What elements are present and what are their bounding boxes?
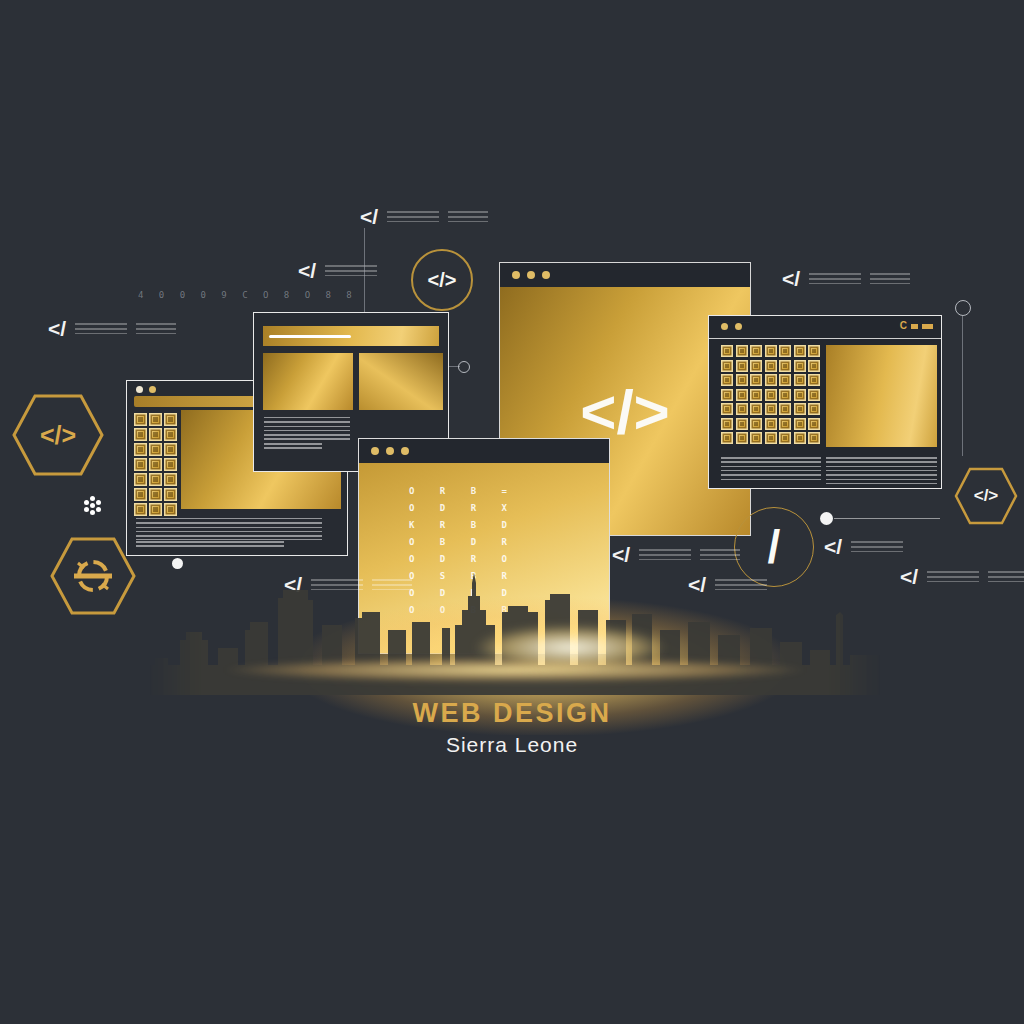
code-tag-icon: </> xyxy=(428,269,457,292)
window-dot xyxy=(149,386,156,393)
grid-thumbnail xyxy=(736,418,748,430)
grid-thumbnail xyxy=(134,503,147,516)
grid-thumbnail xyxy=(779,432,791,444)
grid-thumbnail xyxy=(765,418,777,430)
dots-cluster-icon xyxy=(90,503,95,508)
grid-thumbnail xyxy=(750,389,762,401)
grid-thumbnail xyxy=(736,403,748,415)
grid-thumbnail xyxy=(808,432,820,444)
close-tag-icon: </ xyxy=(298,260,316,281)
grid-thumbnail xyxy=(134,443,147,456)
window-dot xyxy=(721,323,728,330)
grid-thumbnail xyxy=(794,374,806,386)
window-dot xyxy=(136,386,143,393)
close-tag-icon: </ xyxy=(900,566,918,587)
grid-thumbnail xyxy=(779,360,791,372)
grid-thumbnail xyxy=(149,428,162,441)
pseudo-text-lines xyxy=(448,211,488,222)
grid-thumbnail xyxy=(149,488,162,501)
node-circle xyxy=(458,361,470,373)
code-row: K R B D xyxy=(409,517,517,534)
grid-thumbnail xyxy=(134,488,147,501)
grid-thumbnail xyxy=(721,345,733,357)
grid-thumbnail xyxy=(794,345,806,357)
title-bar xyxy=(359,439,609,463)
pseudo-text-lines xyxy=(988,571,1024,582)
grid-thumbnail xyxy=(164,488,177,501)
paragraph-lines xyxy=(721,457,821,481)
code-snippet: </ xyxy=(900,566,1024,587)
code-snippet: </ xyxy=(782,268,910,289)
grid-thumbnail xyxy=(779,389,791,401)
grid-thumbnail xyxy=(164,428,177,441)
pseudo-text-lines xyxy=(870,273,910,284)
grid-thumbnail xyxy=(808,418,820,430)
grid-thumbnail xyxy=(149,473,162,486)
code-snippet: </ xyxy=(48,318,176,339)
window-dot xyxy=(527,271,535,279)
grid-thumbnail xyxy=(750,360,762,372)
browser-window-gallery: C xyxy=(708,315,942,489)
close-tag-icon: </ xyxy=(824,536,842,557)
grid-thumbnail xyxy=(149,443,162,456)
grid-thumbnail xyxy=(721,389,733,401)
grid-thumbnail xyxy=(765,374,777,386)
toolbar-icon xyxy=(911,324,918,329)
grid-thumbnail xyxy=(721,432,733,444)
grid-thumbnail xyxy=(808,345,820,357)
code-row: O R B = xyxy=(409,483,517,500)
code-snippet: </ xyxy=(298,260,377,281)
hex-code-badge: </> xyxy=(12,394,104,476)
grid-thumbnail xyxy=(149,503,162,516)
grid-thumbnail xyxy=(794,432,806,444)
grid-thumbnail xyxy=(721,418,733,430)
code-snippet: </ xyxy=(824,536,903,557)
grid-thumbnail xyxy=(134,458,147,471)
grid-thumbnail xyxy=(794,360,806,372)
window-dot xyxy=(735,323,742,330)
window-dot xyxy=(401,447,409,455)
code-tag-icon: </> xyxy=(12,394,104,476)
grid-thumbnail xyxy=(765,432,777,444)
grid-thumbnail xyxy=(794,389,806,401)
hexagon-outline-icon xyxy=(50,537,136,615)
thumbnail-grid xyxy=(134,413,177,516)
code-tag-icon: </> xyxy=(954,467,1018,525)
grid-thumbnail xyxy=(765,403,777,415)
code-row: O D R X xyxy=(409,500,517,517)
code-snippet: </ xyxy=(360,206,488,227)
poster-subheading: Sierra Leone xyxy=(0,733,1024,757)
grid-thumbnail xyxy=(736,360,748,372)
grid-thumbnail xyxy=(808,374,820,386)
grid-thumbnail xyxy=(164,443,177,456)
grid-thumbnail xyxy=(134,473,147,486)
connector-line-vertical xyxy=(364,228,365,313)
circle-code-badge: </> xyxy=(411,249,473,311)
grid-thumbnail xyxy=(134,428,147,441)
image-box xyxy=(359,353,443,410)
grid-thumbnail xyxy=(779,345,791,357)
window-dot xyxy=(386,447,394,455)
pseudo-text-lines xyxy=(136,323,176,334)
poster-heading: WEB DESIGN xyxy=(0,698,1024,729)
close-tag-icon: </ xyxy=(782,268,800,289)
grid-thumbnail xyxy=(794,418,806,430)
close-tag-icon: </ xyxy=(48,318,66,339)
grid-thumbnail xyxy=(134,413,147,426)
pseudo-text-lines xyxy=(387,211,439,222)
grid-thumbnail xyxy=(721,374,733,386)
grid-thumbnail xyxy=(164,473,177,486)
toolbar-icon xyxy=(922,324,933,329)
pseudo-text-lines xyxy=(927,571,979,582)
grid-thumbnail xyxy=(164,413,177,426)
close-tag-icon: </ xyxy=(360,206,378,227)
grid-thumbnail xyxy=(750,403,762,415)
pseudo-text-lines xyxy=(75,323,127,334)
grid-thumbnail xyxy=(164,458,177,471)
hex-circuit-badge xyxy=(50,537,136,615)
title-bar: C xyxy=(709,316,941,339)
grid-thumbnail xyxy=(765,360,777,372)
glyph-strip: 4 0 0 0 9 C O 8 O 8 8 xyxy=(138,290,357,300)
title-block: WEB DESIGN Sierra Leone xyxy=(0,698,1024,757)
grid-thumbnail xyxy=(794,403,806,415)
grid-thumbnail xyxy=(750,345,762,357)
code-tag-icon: </> xyxy=(580,376,670,447)
grid-thumbnail xyxy=(164,503,177,516)
grid-thumbnail xyxy=(808,403,820,415)
image-box xyxy=(263,353,353,410)
grid-thumbnail xyxy=(765,345,777,357)
code-row: O B D R xyxy=(409,534,517,551)
pseudo-text-lines xyxy=(325,265,377,276)
grid-thumbnail xyxy=(750,418,762,430)
header-banner xyxy=(263,326,439,346)
paragraph-lines xyxy=(136,518,322,540)
grid-thumbnail xyxy=(765,389,777,401)
connector-line-horizontal xyxy=(834,518,940,519)
grid-thumbnail xyxy=(736,389,748,401)
grid-thumbnail xyxy=(808,360,820,372)
grid-thumbnail xyxy=(808,389,820,401)
grid-thumbnail xyxy=(779,374,791,386)
content-panel xyxy=(826,345,937,447)
title-bar xyxy=(500,263,750,287)
paragraph-lines xyxy=(136,541,284,550)
grid-thumbnail xyxy=(779,418,791,430)
window-dot xyxy=(512,271,520,279)
window-dot xyxy=(542,271,550,279)
sun-core-glow xyxy=(450,620,690,675)
node-circle xyxy=(955,300,971,316)
pseudo-text-lines xyxy=(851,541,903,552)
connector-line-vertical xyxy=(962,316,963,456)
banner-rule xyxy=(269,335,351,338)
grid-thumbnail xyxy=(721,360,733,372)
grid-thumbnail xyxy=(736,374,748,386)
poster-canvas: 4 0 0 0 9 C O 8 O 8 8 </ </ </ </ xyxy=(0,0,1024,1024)
node-dot xyxy=(820,512,833,525)
grid-thumbnail xyxy=(149,458,162,471)
grid-thumbnail xyxy=(721,403,733,415)
title-bar-icons: C xyxy=(900,321,933,331)
paragraph-lines xyxy=(264,417,350,441)
grid-thumbnail xyxy=(736,432,748,444)
grid-thumbnail xyxy=(779,403,791,415)
pseudo-text-lines xyxy=(809,273,861,284)
paragraph-lines xyxy=(264,443,322,451)
grid-thumbnail xyxy=(149,413,162,426)
thumbnail-grid xyxy=(721,345,820,444)
grid-thumbnail xyxy=(736,345,748,357)
grid-thumbnail xyxy=(750,432,762,444)
refresh-icon: C xyxy=(900,321,907,331)
hex-code-badge-small: </> xyxy=(954,467,1018,525)
paragraph-lines xyxy=(826,457,937,485)
grid-thumbnail xyxy=(750,374,762,386)
window-dot xyxy=(371,447,379,455)
